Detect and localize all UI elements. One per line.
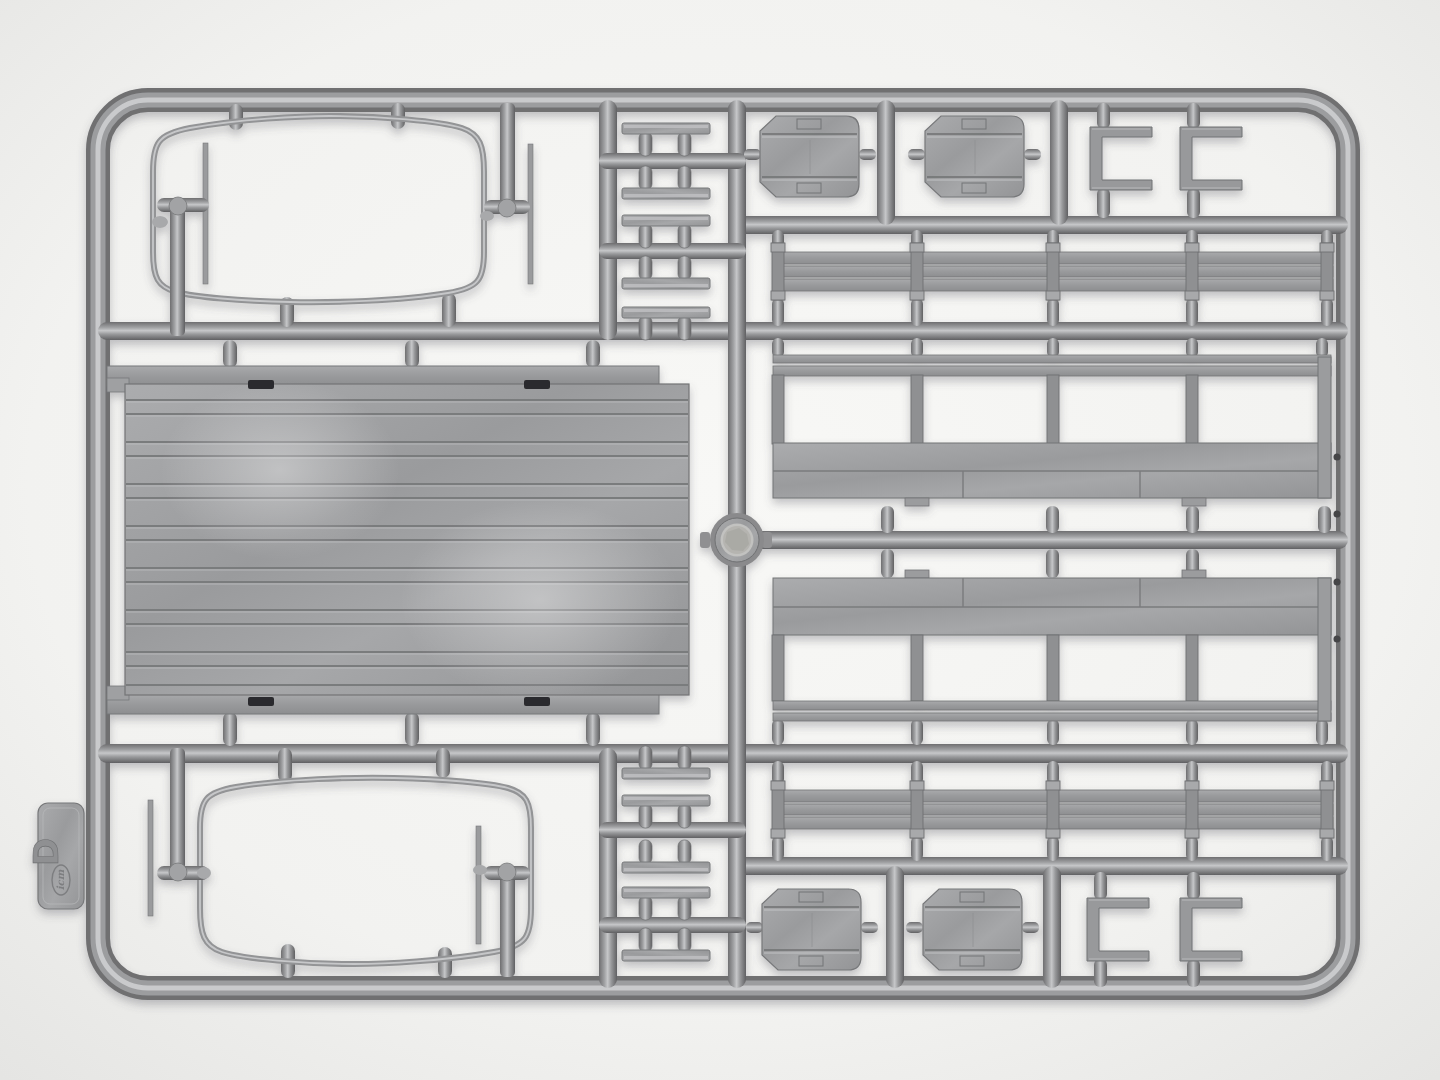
sprue-gate bbox=[436, 748, 450, 778]
thin-rod bbox=[528, 144, 533, 284]
footboard-panel bbox=[760, 116, 859, 197]
footboard-panel bbox=[923, 889, 1022, 970]
sprue-gate bbox=[405, 340, 419, 368]
brand-logo-text: icm bbox=[55, 869, 66, 890]
panel-end-cap bbox=[1318, 578, 1331, 721]
sprue-gate bbox=[223, 712, 237, 746]
sprue-gate bbox=[223, 340, 237, 368]
footboard-panel bbox=[925, 116, 1024, 197]
sprue-photo-canvas: D icm bbox=[0, 0, 1440, 1080]
sprue-gate bbox=[278, 748, 292, 782]
runner-horizontal-top-right bbox=[731, 216, 1348, 234]
photo-of-model-kit-sprue: D icm bbox=[0, 0, 1440, 1080]
sprue-gate bbox=[442, 293, 456, 327]
thin-rod bbox=[476, 826, 481, 944]
sprue-letter: D bbox=[26, 838, 66, 866]
panel-end-cap bbox=[1318, 357, 1331, 498]
runner-horizontal-bottom-right bbox=[731, 857, 1348, 875]
sprue-gate bbox=[438, 947, 452, 978]
panel-end-cap bbox=[107, 366, 659, 386]
floor-panel-part bbox=[107, 340, 689, 746]
panel-end-cap bbox=[107, 694, 659, 714]
footboard-panel bbox=[762, 889, 861, 970]
sprue-gate bbox=[586, 712, 600, 746]
thin-rod bbox=[148, 800, 153, 916]
sprue-gate bbox=[229, 104, 243, 130]
sprue-gate bbox=[405, 712, 419, 746]
thin-rod bbox=[203, 143, 208, 284]
runner-horizontal-middle bbox=[737, 531, 1348, 549]
sprue-gate bbox=[586, 340, 600, 368]
